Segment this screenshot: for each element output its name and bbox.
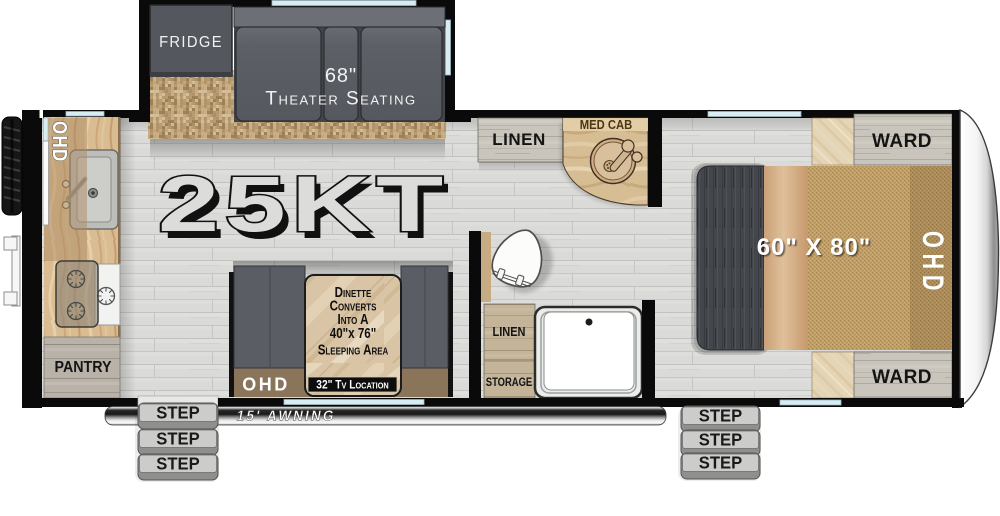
svg-text:40"x 76": 40"x 76" [330, 325, 376, 342]
svg-text:STEP: STEP [156, 454, 199, 473]
svg-text:Sleeping Area: Sleeping Area [318, 341, 389, 358]
svg-text:PANTRY: PANTRY [55, 360, 112, 377]
svg-text:MED CAB: MED CAB [580, 117, 633, 132]
svg-text:LINEN: LINEN [492, 130, 546, 149]
svg-text:25KT: 25KT [158, 160, 449, 248]
svg-text:STEP: STEP [699, 430, 742, 449]
svg-text:STEP: STEP [156, 403, 199, 422]
svg-text:STEP: STEP [156, 429, 199, 448]
svg-text:WARD: WARD [872, 131, 932, 152]
svg-text:OHD: OHD [916, 231, 950, 296]
svg-text:60" X 80": 60" X 80" [757, 234, 872, 261]
svg-text:LINEN: LINEN [493, 325, 526, 339]
svg-text:68": 68" [325, 65, 357, 87]
svg-text:15' AWNING: 15' AWNING [235, 407, 337, 424]
svg-text:FRIDGE: FRIDGE [159, 33, 223, 51]
svg-text:STORAGE: STORAGE [486, 376, 532, 389]
svg-text:STEP: STEP [699, 406, 742, 425]
svg-text:Theater Seating: Theater Seating [265, 89, 416, 110]
svg-text:OHD: OHD [49, 121, 72, 163]
svg-text:32" Tv Location: 32" Tv Location [316, 379, 389, 392]
svg-text:OHD: OHD [242, 375, 290, 395]
svg-text:WARD: WARD [872, 367, 932, 388]
svg-text:STEP: STEP [699, 453, 742, 472]
